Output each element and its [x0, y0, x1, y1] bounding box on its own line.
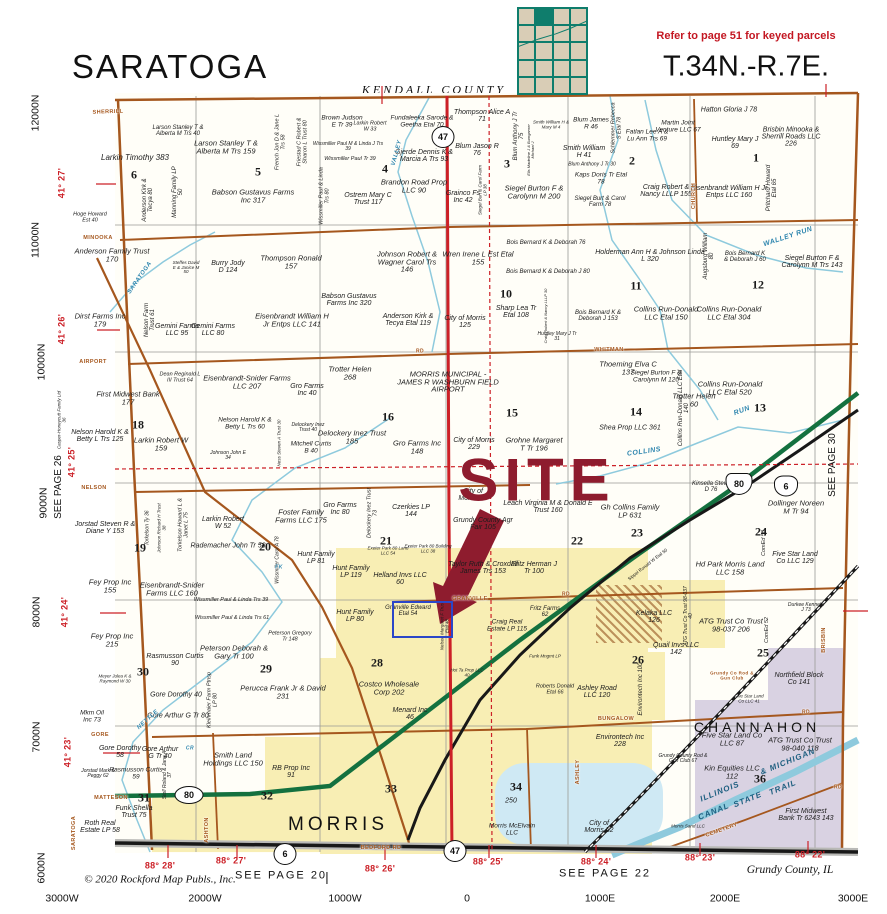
map-line [213, 733, 218, 849]
see-page-22-label: SEE PAGE 22 [559, 868, 651, 879]
channahon-city-label: CHANNAHON [694, 719, 820, 735]
highway-shield: 80 [175, 786, 204, 804]
highway-shield: 47 [432, 126, 455, 148]
map-line [97, 258, 409, 843]
map-line [842, 93, 858, 850]
copyright-text: © 2020 Rockford Map Publs., Inc. [84, 874, 236, 885]
map-line [527, 728, 531, 851]
plat-map-page: SARATOGA T.34N.-R.7E. Refer to page 51 f… [0, 0, 887, 914]
inset-road-line [518, 21, 587, 47]
map-line [612, 740, 858, 855]
highway-shield: 6 [274, 843, 297, 865]
morris-city-label: MORRIS [288, 814, 388, 836]
map-line [645, 100, 843, 272]
site-marker-label: SITE [458, 446, 615, 515]
map-line [115, 93, 858, 100]
site-parcel-outline [392, 601, 453, 638]
highway-shield: 47 [444, 840, 467, 862]
map-line [447, 96, 452, 852]
map-line [600, 96, 718, 420]
county-label: Grundy County, IL [747, 865, 834, 877]
map-line [118, 100, 152, 850]
map-line [694, 99, 697, 222]
map-line [128, 344, 858, 364]
township-locator-inset [517, 7, 588, 95]
see-page-20-label: SEE PAGE 20 [235, 870, 327, 881]
